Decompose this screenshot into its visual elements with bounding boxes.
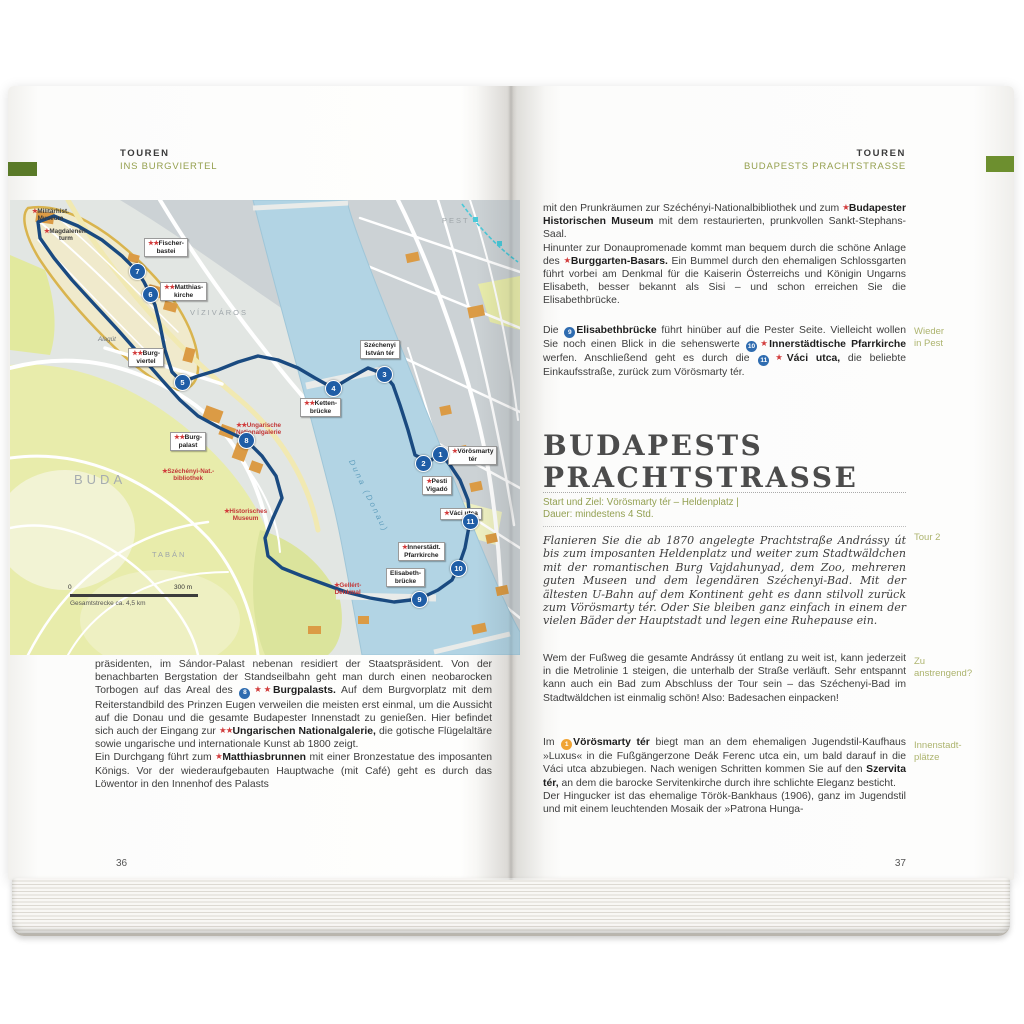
section-title: BUDAPESTS PRACHTSTRASSE xyxy=(543,430,923,494)
tour-intro-paragraph: Flanieren Sie die ab 1870 angelegte Prac… xyxy=(543,534,906,628)
star-icon: ★ xyxy=(426,478,431,485)
stop-badge: 10 xyxy=(746,341,757,352)
map-stop: 1 xyxy=(432,446,449,463)
margin-note: Innenstadt- plätze xyxy=(914,740,1010,763)
stop-badge: 8 xyxy=(239,688,250,699)
map-label-box: ★★Matthias- kirche xyxy=(160,282,207,301)
map-label-box: ★★Fischer- bastei xyxy=(144,238,188,257)
map-label-box: Elisabeth- brücke xyxy=(386,568,425,587)
page-edges xyxy=(12,878,1010,936)
scale-zero: 0 xyxy=(68,584,72,591)
map-stop: 3 xyxy=(376,366,393,383)
star-icon: ★★ xyxy=(304,400,315,407)
map-label-box: Széchenyi István tér xyxy=(360,340,400,359)
scale-bar xyxy=(70,594,198,597)
right-page: TOUREN BUDAPESTS PRACHTSTRASSE mit den P… xyxy=(520,86,1014,880)
map-label-box: ★Pesti Vigadó xyxy=(422,476,452,495)
map-label-box: ★★Burg- viertel xyxy=(128,348,164,367)
right-header: TOUREN BUDAPESTS PRACHTSTRASSE xyxy=(744,148,906,172)
map-stop: 6 xyxy=(142,286,159,303)
map-text-label: ★Széchényi-Nat.- bibliothek xyxy=(162,468,214,482)
paragraph: Der Hingucker ist das ehemalige Török-Ba… xyxy=(543,790,906,816)
stop-badge-orange: 1 xyxy=(561,739,572,750)
star-icon: ★★ xyxy=(132,350,143,357)
star-icon: ★ xyxy=(402,544,407,551)
star-icon: ★ xyxy=(452,448,457,455)
paragraph: Im 1Vörösmarty tér biegt man an dem ehem… xyxy=(543,736,906,790)
left-page: TOUREN INS BURGVIERTEL xyxy=(8,86,520,880)
margin-note: Zu anstrengend? xyxy=(914,656,1010,679)
star-icon: ★ xyxy=(224,508,229,515)
star-icon: ★★ xyxy=(251,684,273,694)
map-text-label: ★Militärhist. Museum xyxy=(32,208,69,222)
open-guidebook: TOUREN INS BURGVIERTEL xyxy=(8,86,1014,936)
right-body-block-1: mit den Prunkräumen zur Széchényi-Nation… xyxy=(543,202,906,308)
map-stop: 8 xyxy=(238,432,255,449)
margin-note: Tour 2 xyxy=(914,532,1010,544)
star-icon: ★ xyxy=(563,255,570,265)
district-label: BUDA xyxy=(74,472,126,487)
star-icon: ★ xyxy=(162,468,167,475)
paragraph: Die 9Elisabethbrücke führt hinüber auf d… xyxy=(543,324,906,379)
star-icon: ★★ xyxy=(236,422,247,429)
map-stop: 9 xyxy=(411,591,428,608)
star-icon: ★ xyxy=(44,228,49,235)
star-icon: ★★ xyxy=(148,240,159,247)
left-header: TOUREN INS BURGVIERTEL xyxy=(120,148,217,172)
star-icon: ★ xyxy=(770,352,786,362)
tour-info-line: Start und Ziel: Vörösmarty tér – Heldenp… xyxy=(543,492,906,527)
map-stop: 11 xyxy=(462,513,479,530)
paragraph: Hinunter zur Donaupromenade kommt man be… xyxy=(543,242,906,308)
chapter-tab-right xyxy=(986,156,1014,172)
scale-end: 300 m xyxy=(174,584,192,591)
star-icon: ★ xyxy=(32,208,37,215)
map-stop: 10 xyxy=(450,560,467,577)
left-subtitle: INS BURGVIERTEL xyxy=(120,161,217,172)
star-icon: ★ xyxy=(842,202,849,212)
paragraph: Wem der Fußweg die gesamte Andrássy út e… xyxy=(543,652,906,705)
star-icon: ★★ xyxy=(219,725,233,735)
district-label: VÍZIVÁROS xyxy=(190,308,248,317)
star-icon: ★★ xyxy=(174,434,185,441)
stop-badge: 11 xyxy=(758,355,769,366)
map-text-label: ★Gellért- Denkmal xyxy=(334,582,361,596)
paragraph: präsidenten, im Sándor-Palast nebenan re… xyxy=(95,658,492,751)
map-stop: 4 xyxy=(325,380,342,397)
map-text-label: ★Magdalenen- turm xyxy=(44,228,88,242)
right-body-block-4: Im 1Vörösmarty tér biegt man an dem ehem… xyxy=(543,736,906,816)
map-text-label: Alagút xyxy=(98,336,116,343)
map-stop: 5 xyxy=(174,374,191,391)
right-kicker: TOUREN xyxy=(744,148,906,159)
right-subtitle: BUDAPESTS PRACHTSTRASSE xyxy=(744,161,906,172)
star-icon: ★ xyxy=(215,751,222,761)
page-number-right: 37 xyxy=(895,858,906,869)
right-body-block-3: Wem der Fußweg die gesamte Andrássy út e… xyxy=(543,652,906,705)
map-label-box: ★★Ketten- brücke xyxy=(300,398,341,417)
map-label-box: ★Innerstädt. Pfarrkirche xyxy=(398,542,445,561)
map-text-label: ★Historisches Museum xyxy=(224,508,267,522)
paragraph: Ein Durchgang führt zum ★Matthiasbrunnen… xyxy=(95,751,492,791)
star-icon: ★ xyxy=(334,582,339,589)
chapter-tab-left xyxy=(8,162,37,176)
paragraph: mit den Prunkräumen zur Széchényi-Nation… xyxy=(543,202,906,242)
map-label-box: ★Vörösmarty tér xyxy=(448,446,497,465)
left-body-text: präsidenten, im Sándor-Palast nebenan re… xyxy=(95,658,492,791)
budapest-tour-map: 1 2 3 4 5 6 7 8 9 10 11 ★★Fischer- baste… xyxy=(10,200,520,655)
left-kicker: TOUREN xyxy=(120,148,217,159)
district-label: TABÁN xyxy=(152,550,186,559)
stop-badge: 9 xyxy=(564,327,575,338)
star-icon: ★★ xyxy=(164,284,175,291)
district-label: PEST xyxy=(442,216,470,225)
page-number-left: 36 xyxy=(116,858,127,869)
right-body-block-2: Die 9Elisabethbrücke führt hinüber auf d… xyxy=(543,324,906,379)
star-icon: ★ xyxy=(444,510,449,517)
book-photo: TOUREN INS BURGVIERTEL xyxy=(0,0,1024,1024)
map-stop: 7 xyxy=(129,263,146,280)
map-label-box: ★★Burg- palast xyxy=(170,432,206,451)
star-icon: ★ xyxy=(758,338,769,348)
scale-note: Gesamtstrecke ca. 4,5 km xyxy=(70,600,146,607)
map-stop: 2 xyxy=(415,455,432,472)
margin-note: Wieder in Pest xyxy=(914,326,1010,349)
